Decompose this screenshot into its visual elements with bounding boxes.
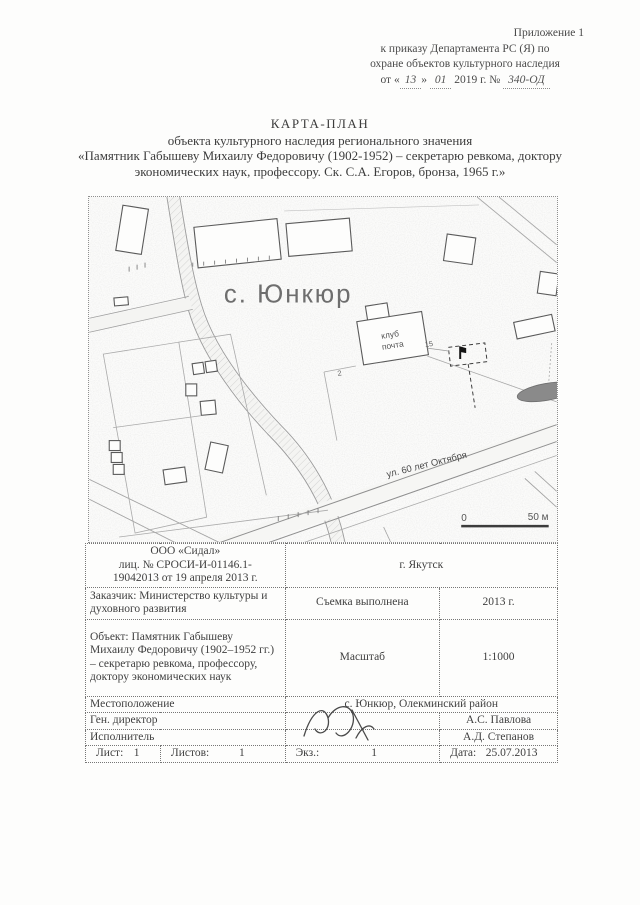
table-row-organization: ООО «Сидал» лиц. № СРОСИ-И-01146.1- 1904… bbox=[86, 544, 558, 588]
order-day-handwritten: 13 bbox=[400, 73, 422, 90]
date-label: Дата: bbox=[450, 747, 476, 761]
date-value: 25.07.2013 bbox=[476, 747, 547, 761]
appendix-line: Приложение 1 bbox=[336, 26, 594, 42]
house bbox=[109, 441, 120, 451]
house bbox=[114, 297, 129, 306]
survey-label-cell: Съемка выполнена bbox=[285, 587, 440, 619]
document-title: КАРТА-ПЛАН объекта культурного наследия … bbox=[58, 116, 582, 179]
executor-label-cell: Исполнитель bbox=[86, 729, 286, 746]
title-line-3: «Памятник Габышеву Михаилу Федоровичу (1… bbox=[58, 148, 582, 164]
table-row-location: Местоположение с. Юнкюр, Олекминский рай… bbox=[86, 696, 558, 713]
title-line-2: объекта культурного наследия регионально… bbox=[58, 133, 582, 149]
director-signature-cell bbox=[285, 713, 440, 730]
survey-year-cell: 2013 г. bbox=[440, 587, 558, 619]
director-name-cell: А.С. Павлова bbox=[440, 713, 558, 730]
org-license-1: лиц. № СРОСИ-И-01146.1- bbox=[90, 559, 281, 573]
date-cell: Дата:25.07.2013 bbox=[440, 746, 558, 763]
appendix-line: к приказу Департамента РС (Я) по bbox=[336, 42, 594, 58]
info-table: ООО «Сидал» лиц. № СРОСИ-И-01146.1- 1904… bbox=[85, 543, 558, 763]
house-number-label: 15 bbox=[424, 339, 434, 349]
sheet-cell: Лист:1 bbox=[86, 746, 161, 763]
site-map: с. Юнкюр ул. 60 лет Октября клуб почта 1… bbox=[88, 196, 558, 543]
appendix-line: охране объектов культурного наследия bbox=[336, 57, 594, 73]
document-page: Приложение 1 к приказу Департамента РС (… bbox=[0, 0, 640, 905]
executor-name-cell: А.Д. Степанов bbox=[440, 729, 558, 746]
copy-label: Экз.: bbox=[296, 747, 320, 761]
scale-value-cell: 1:1000 bbox=[440, 619, 558, 696]
table-row-customer: Заказчик: Министерство культуры и духовн… bbox=[86, 587, 558, 619]
org-name: ООО «Сидал» bbox=[90, 545, 281, 559]
table-row-meta: Лист:1 Листов:1 Экз.:1 Дата:25.07.2013 bbox=[86, 746, 558, 763]
site-map-svg: с. Юнкюр ул. 60 лет Октября клуб почта 1… bbox=[89, 197, 557, 542]
building-large bbox=[194, 219, 281, 268]
order-number-handwritten: 340-ОД bbox=[503, 73, 549, 90]
scale-end-label: 50 м bbox=[528, 512, 549, 523]
scale-start-label: 0 bbox=[461, 513, 467, 524]
title-line-1: КАРТА-ПЛАН bbox=[58, 116, 582, 132]
order-line: от «13» 01 2019 г. № 340-ОД bbox=[336, 73, 594, 90]
house bbox=[205, 360, 217, 372]
village-label: с. Юнкюр bbox=[224, 280, 353, 308]
house bbox=[200, 400, 216, 415]
appendix-block: Приложение 1 к приказу Департамента РС (… bbox=[336, 26, 594, 89]
location-value-cell: с. Юнкюр, Олекминский район bbox=[285, 696, 557, 713]
sheets-cell: Листов:1 bbox=[160, 746, 285, 763]
title-line-4: экономических наук, профессору. Ск. С.А.… bbox=[58, 164, 582, 180]
scale-label-cell: Масштаб bbox=[285, 619, 440, 696]
sheets-label: Листов: bbox=[171, 747, 209, 761]
house bbox=[186, 384, 197, 396]
table-row-director: Ген. директор А.С. Павлова bbox=[86, 713, 558, 730]
building bbox=[537, 271, 557, 295]
director-label-cell: Ген. директор bbox=[86, 713, 286, 730]
object-cell: Объект: Памятник Габышеву Михаилу Федоро… bbox=[86, 619, 286, 696]
house bbox=[192, 362, 204, 374]
table-row-executor: Исполнитель А.Д. Степанов bbox=[86, 729, 558, 746]
order-prefix: от « bbox=[380, 74, 399, 86]
sheet-value: 1 bbox=[123, 747, 150, 761]
copy-value: 1 bbox=[319, 747, 429, 761]
house bbox=[113, 464, 124, 474]
copy-cell: Экз.:1 bbox=[285, 746, 440, 763]
order-year: 2019 г. № bbox=[454, 74, 500, 86]
executor-signature-cell bbox=[285, 729, 440, 746]
organization-cell: ООО «Сидал» лиц. № СРОСИ-И-01146.1- 1904… bbox=[86, 544, 286, 588]
order-month-handwritten: 01 bbox=[430, 73, 452, 90]
building bbox=[443, 234, 475, 265]
building-large bbox=[286, 218, 352, 256]
customer-cell: Заказчик: Министерство культуры и духовн… bbox=[86, 587, 286, 619]
table-row-object: Объект: Памятник Габышеву Михаилу Федоро… bbox=[86, 619, 558, 696]
sheets-value: 1 bbox=[209, 747, 274, 761]
city-cell: г. Якутск bbox=[285, 544, 557, 588]
location-label-cell: Местоположение bbox=[86, 696, 286, 713]
house bbox=[163, 467, 187, 485]
order-quote: » bbox=[421, 74, 427, 86]
sheet-label: Лист: bbox=[96, 747, 123, 761]
house bbox=[111, 453, 122, 463]
org-license-2: 19042013 от 19 апреля 2013 г. bbox=[90, 572, 281, 586]
